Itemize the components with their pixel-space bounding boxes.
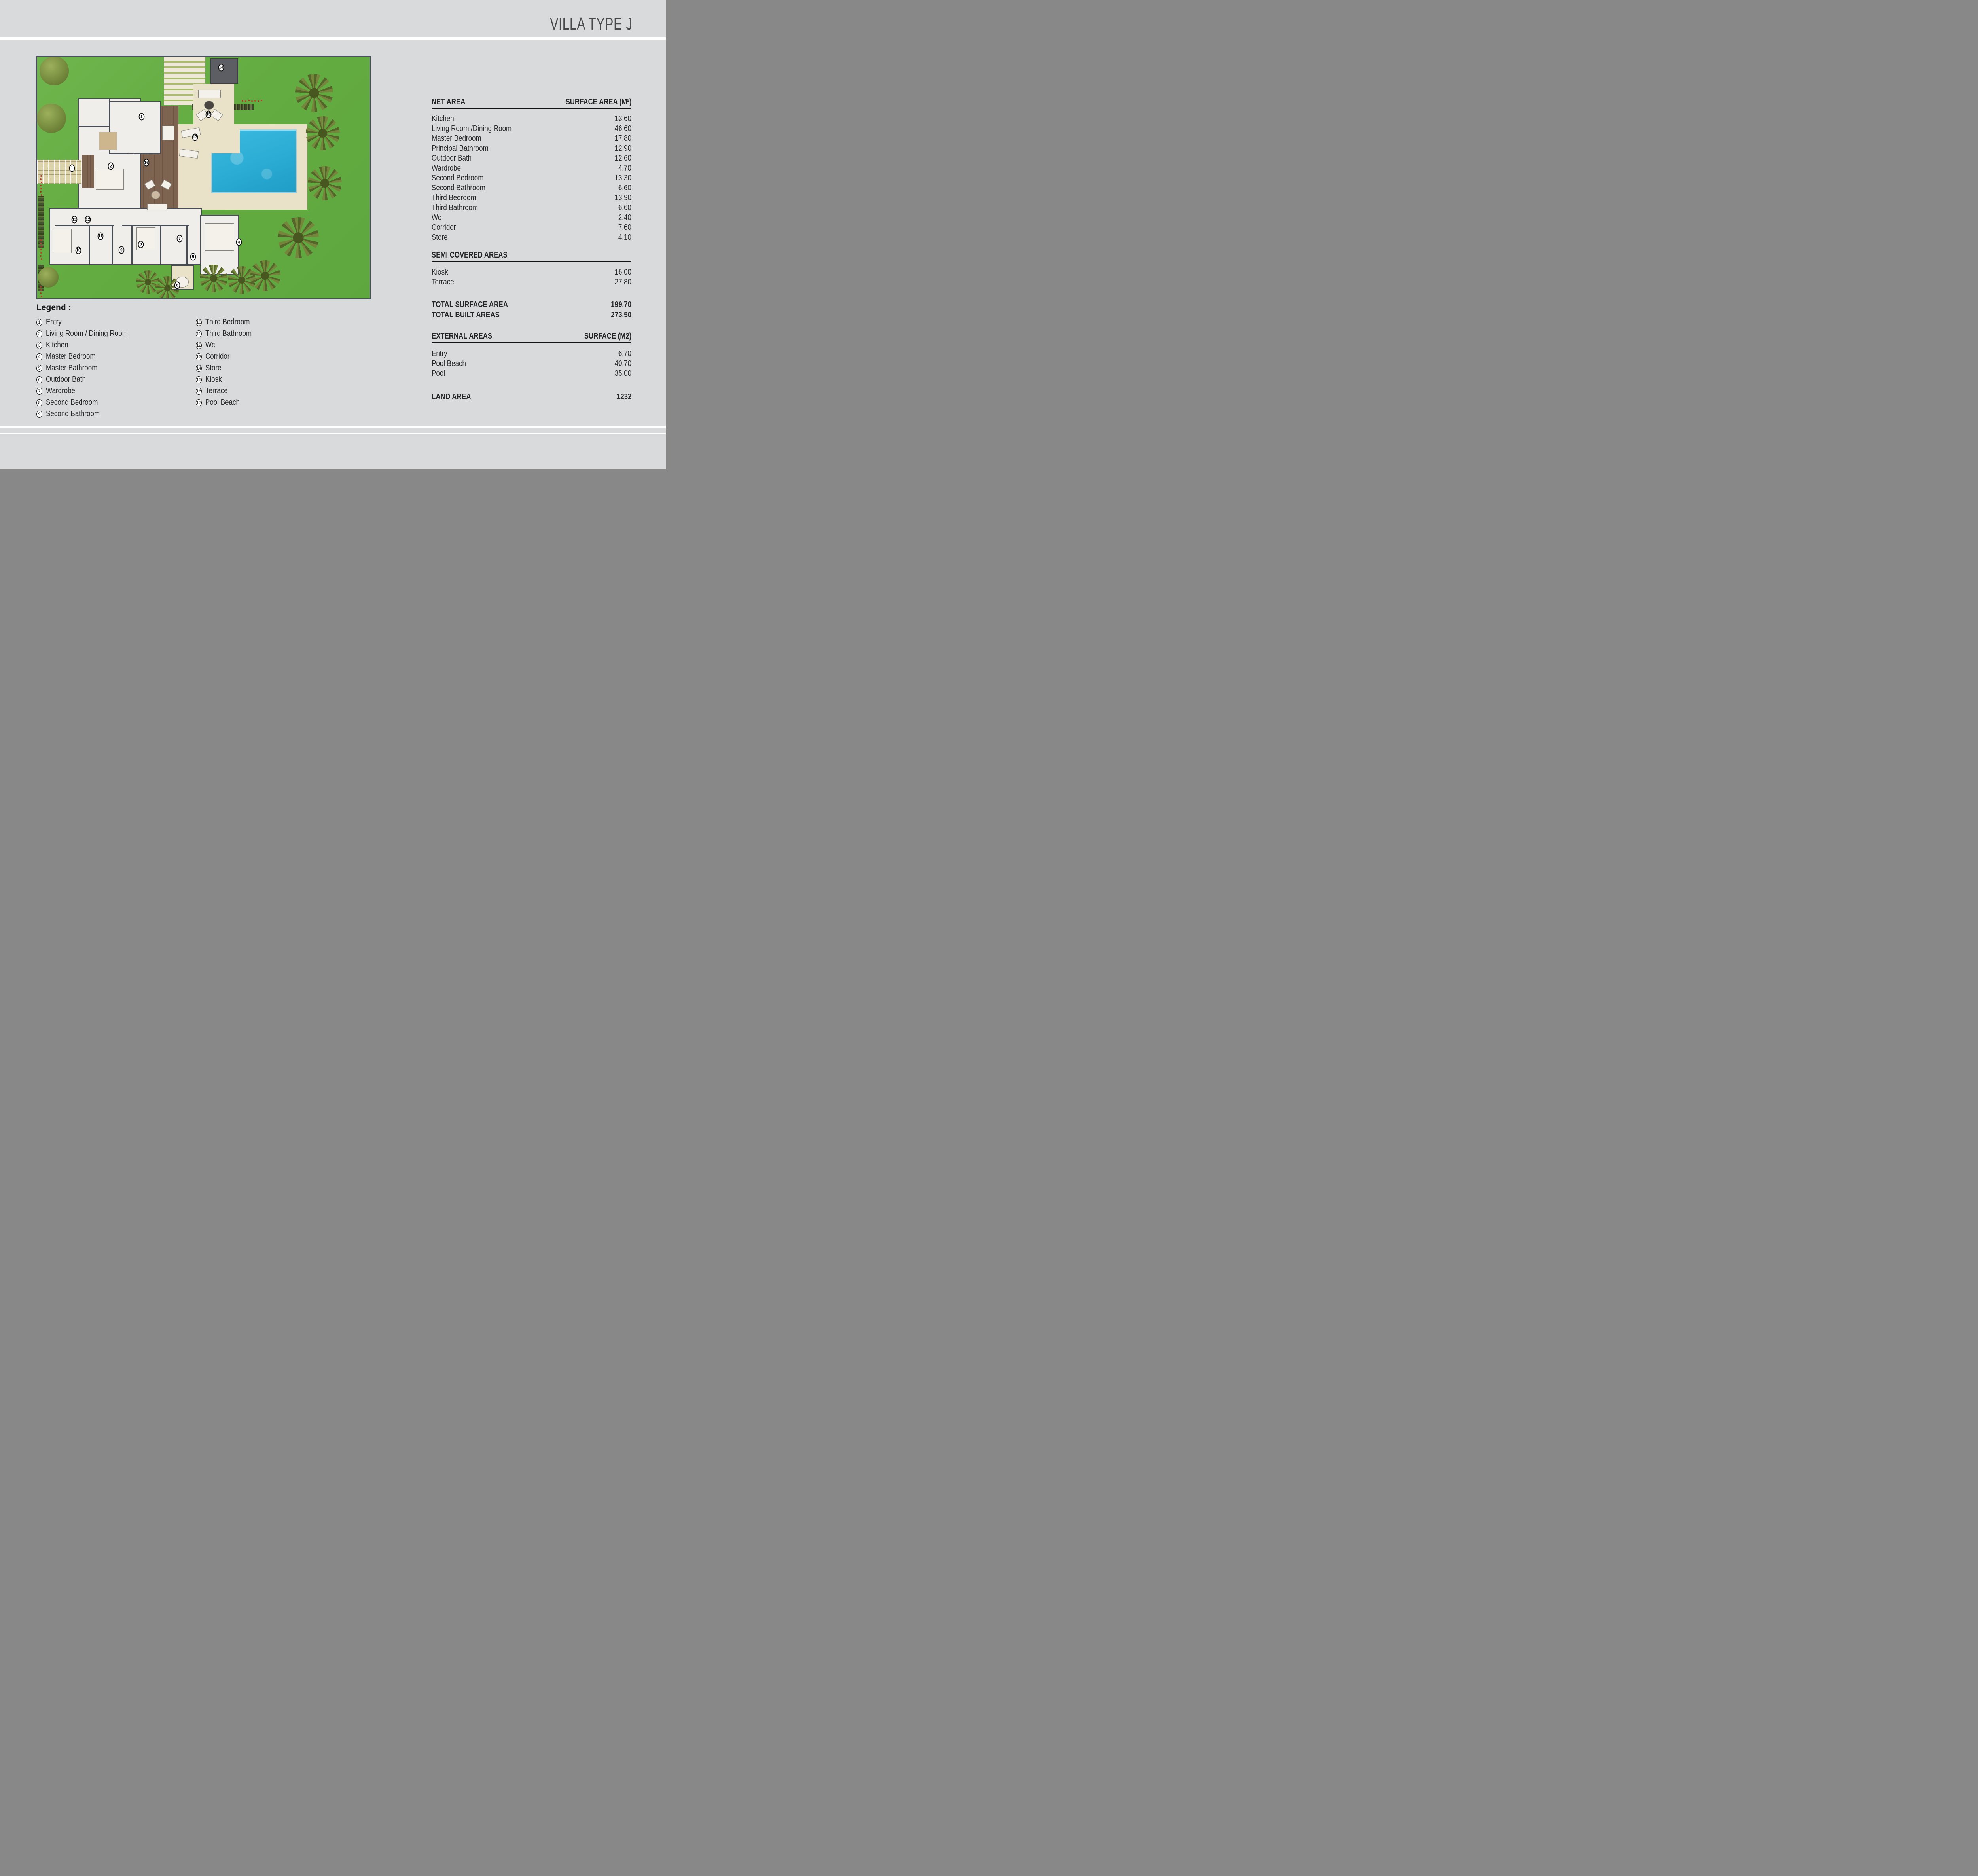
area-value: 40.70 [614, 359, 631, 368]
legend-number-badge: 4 [36, 353, 42, 360]
table-row: TOTAL SURFACE AREA199.70 [432, 299, 631, 310]
table-row: Master Bedroom17.80 [432, 134, 631, 144]
area-value: 16.00 [614, 268, 631, 277]
area-label: LAND AREA [432, 392, 471, 402]
legend-number-badge: 12 [196, 342, 202, 349]
table-row: Living Room /Dining Room46.60 [432, 124, 631, 134]
external-areas-title: EXTERNAL AREAS [432, 332, 492, 341]
land-area-row: LAND AREA1232 [432, 392, 631, 402]
legend-number-badge: 1 [36, 319, 42, 326]
plan-marker-11: 11 [97, 232, 103, 240]
table-row: Wardrobe4.70 [432, 163, 631, 173]
legend-item: 3Kitchen [36, 339, 142, 351]
plan-marker-2: 2 [108, 163, 114, 170]
legend-item: 8Second Bedroom [36, 397, 142, 408]
area-value: 13.60 [614, 114, 631, 123]
area-label: Kitchen [432, 114, 454, 123]
legend-label: Terrace [205, 387, 228, 396]
legend-item: 1Entry [36, 316, 142, 328]
legend-number-badge: 17 [196, 399, 202, 406]
table-row: Second Bathroom6.60 [432, 183, 631, 193]
floor-plan: 1234567891011121314151617 [36, 56, 371, 299]
plan-marker-16: 16 [143, 159, 149, 167]
table-row: Terrace27.80 [432, 277, 631, 287]
legend-column-left: 1Entry2Living Room / Dining Room3Kitchen… [36, 316, 142, 420]
area-label: Store [432, 233, 448, 242]
plan-marker-12: 12 [72, 216, 78, 224]
net-area-header: NET AREA SURFACE AREA (M²) [432, 97, 631, 107]
area-label: TOTAL SURFACE AREA [432, 300, 508, 309]
table-rule [432, 108, 631, 109]
external-areas-header: EXTERNAL AREAS SURFACE (M2) [432, 332, 631, 341]
plan-marker-1: 1 [69, 164, 75, 172]
table-row: Pool35.00 [432, 369, 631, 379]
area-label: Pool Beach [432, 359, 466, 368]
legend-item: 7Wardrobe [36, 385, 142, 397]
legend-number-badge: 13 [196, 353, 202, 360]
legend-heading: Legend : [36, 303, 71, 313]
area-label: Entry [432, 349, 447, 358]
totals-rows: TOTAL SURFACE AREA199.70TOTAL BUILT AREA… [432, 299, 631, 320]
legend-item: 5Master Bathroom [36, 362, 142, 374]
table-row: Entry6.70 [432, 349, 631, 359]
area-label: Kiosk [432, 268, 448, 277]
legend-label: Living Room / Dining Room [46, 329, 128, 338]
area-value: 199.70 [611, 300, 631, 309]
area-label: Corridor [432, 223, 456, 232]
legend-label: Second Bathroom [46, 409, 100, 419]
legend-label: Store [205, 364, 222, 373]
legend-label: Master Bedroom [46, 352, 96, 361]
area-label: Second Bedroom [432, 174, 483, 183]
plan-marker-3: 3 [139, 113, 145, 121]
area-value: 17.80 [614, 134, 631, 143]
legend-item: 13Corridor [196, 351, 260, 362]
legend-number-badge: 8 [36, 399, 42, 406]
area-label: Third Bedroom [432, 193, 476, 203]
plan-marker-13: 13 [85, 216, 91, 224]
table-rule [432, 261, 631, 262]
brochure-page: VILLA TYPE J [0, 0, 666, 469]
area-value: 6.60 [618, 184, 631, 193]
legend-label: Pool Beach [205, 398, 240, 407]
area-label: Wc [432, 213, 441, 222]
legend-label: Corridor [205, 352, 229, 361]
area-label: TOTAL BUILT AREAS [432, 311, 500, 320]
footer-band [0, 434, 666, 469]
area-label: Wardrobe [432, 164, 461, 173]
area-value: 7.60 [618, 223, 631, 232]
table-row: Third Bedroom13.90 [432, 193, 631, 203]
area-label: Third Bathroom [432, 203, 478, 212]
area-value: 273.50 [611, 311, 631, 320]
table-row: Principal Bathroom12.90 [432, 144, 631, 153]
page-title: VILLA TYPE J [550, 14, 633, 34]
legend-item: 14Store [196, 362, 260, 374]
area-label: Master Bedroom [432, 134, 481, 143]
area-value: 46.60 [614, 124, 631, 133]
legend-number-badge: 3 [36, 342, 42, 349]
area-label: Pool [432, 369, 445, 378]
area-label: Terrace [432, 278, 454, 287]
table-row: Second Bedroom13.30 [432, 173, 631, 183]
plan-marker-4: 4 [236, 239, 242, 246]
table-row: Corridor7.60 [432, 223, 631, 233]
area-label: Second Bathroom [432, 184, 485, 193]
plan-marker-15: 15 [206, 110, 212, 118]
legend-label: Outdoor Bath [46, 375, 86, 384]
area-value: 6.60 [618, 203, 631, 212]
table-rule [432, 342, 631, 343]
area-value: 35.00 [614, 369, 631, 378]
footer-stripe [0, 428, 666, 433]
area-value: 6.70 [618, 349, 631, 358]
legend-label: Third Bedroom [205, 318, 250, 327]
table-row: LAND AREA1232 [432, 392, 631, 402]
legend-item: 12Wc [196, 339, 260, 351]
legend-number-badge: 10 [196, 319, 202, 326]
legend-label: Kiosk [205, 375, 222, 384]
semi-covered-title: SEMI COVERED AREAS [432, 250, 508, 260]
area-value: 13.90 [614, 193, 631, 203]
area-value: 1232 [616, 392, 631, 402]
area-label: Principal Bathroom [432, 144, 489, 153]
area-label: Living Room /Dining Room [432, 124, 512, 133]
legend-item: 11Third Bathroom [196, 328, 260, 339]
area-value: 12.60 [614, 154, 631, 163]
plan-marker-17: 17 [192, 133, 198, 141]
table-row: Outdoor Bath12.60 [432, 153, 631, 163]
legend-number-badge: 6 [36, 376, 42, 383]
legend-number-badge: 7 [36, 388, 42, 395]
net-area-rows: Kitchen13.60Living Room /Dining Room46.6… [432, 114, 631, 243]
area-value: 13.30 [614, 174, 631, 183]
legend-number-badge: 11 [196, 330, 202, 337]
legend-number-badge: 15 [196, 376, 202, 383]
table-row: Store4.10 [432, 233, 631, 243]
surface-area-title: SURFACE AREA (M²) [565, 97, 631, 107]
legend-label: Master Bathroom [46, 364, 97, 373]
legend-item: 9Second Bathroom [36, 408, 142, 420]
area-tables-panel: NET AREA SURFACE AREA (M²) Kitchen13.60L… [432, 40, 631, 426]
legend-label: Wardrobe [46, 387, 75, 396]
table-row: Kitchen13.60 [432, 114, 631, 124]
legend-label: Third Bathroom [205, 329, 252, 338]
area-value: 12.90 [614, 144, 631, 153]
legend-label: Second Bedroom [46, 398, 98, 407]
legend-item: 4Master Bedroom [36, 351, 142, 362]
legend-number-badge: 2 [36, 330, 42, 337]
legend-label: Entry [46, 318, 62, 327]
plan-marker-5: 5 [190, 253, 196, 261]
legend-item: 10Third Bedroom [196, 316, 260, 328]
plan-marker-14: 14 [218, 64, 224, 71]
plan-marker-9: 9 [118, 246, 124, 254]
legend-number-badge: 5 [36, 365, 42, 372]
plan-marker-6: 6 [174, 282, 180, 289]
plan-marker-10: 10 [76, 246, 81, 254]
legend-item: 17Pool Beach [196, 397, 260, 408]
table-row: TOTAL BUILT AREAS273.50 [432, 310, 631, 320]
table-row: Third Bathroom6.60 [432, 203, 631, 213]
legend-label: Wc [205, 341, 215, 350]
plan-markers: 1234567891011121314151617 [37, 57, 370, 298]
legend-number-badge: 9 [36, 411, 42, 418]
legend-number-badge: 16 [196, 388, 202, 395]
external-rows: Entry6.70Pool Beach40.70Pool35.00 [432, 349, 631, 379]
legend-item: 16Terrace [196, 385, 260, 397]
semi-covered-header: SEMI COVERED AREAS [432, 250, 631, 260]
table-row: Kiosk16.00 [432, 267, 631, 277]
table-row: Wc2.40 [432, 213, 631, 223]
legend-column-right: 10Third Bedroom11Third Bathroom12Wc13Cor… [196, 316, 260, 408]
net-area-title: NET AREA [432, 97, 465, 107]
plan-marker-8: 8 [138, 241, 144, 248]
semi-covered-rows: Kiosk16.00Terrace27.80 [432, 267, 631, 287]
legend-item: 2Living Room / Dining Room [36, 328, 142, 339]
area-value: 27.80 [614, 278, 631, 287]
table-row: Pool Beach40.70 [432, 359, 631, 369]
area-label: Outdoor Bath [432, 154, 472, 163]
plan-marker-7: 7 [177, 235, 183, 243]
legend-number-badge: 14 [196, 365, 202, 372]
external-surface-title: SURFACE (M2) [584, 332, 631, 341]
legend-item: 6Outdoor Bath [36, 374, 142, 385]
area-value: 4.70 [618, 164, 631, 173]
legend-label: Kitchen [46, 341, 68, 350]
area-value: 2.40 [618, 213, 631, 222]
legend-item: 15Kiosk [196, 374, 260, 385]
area-value: 4.10 [618, 233, 631, 242]
